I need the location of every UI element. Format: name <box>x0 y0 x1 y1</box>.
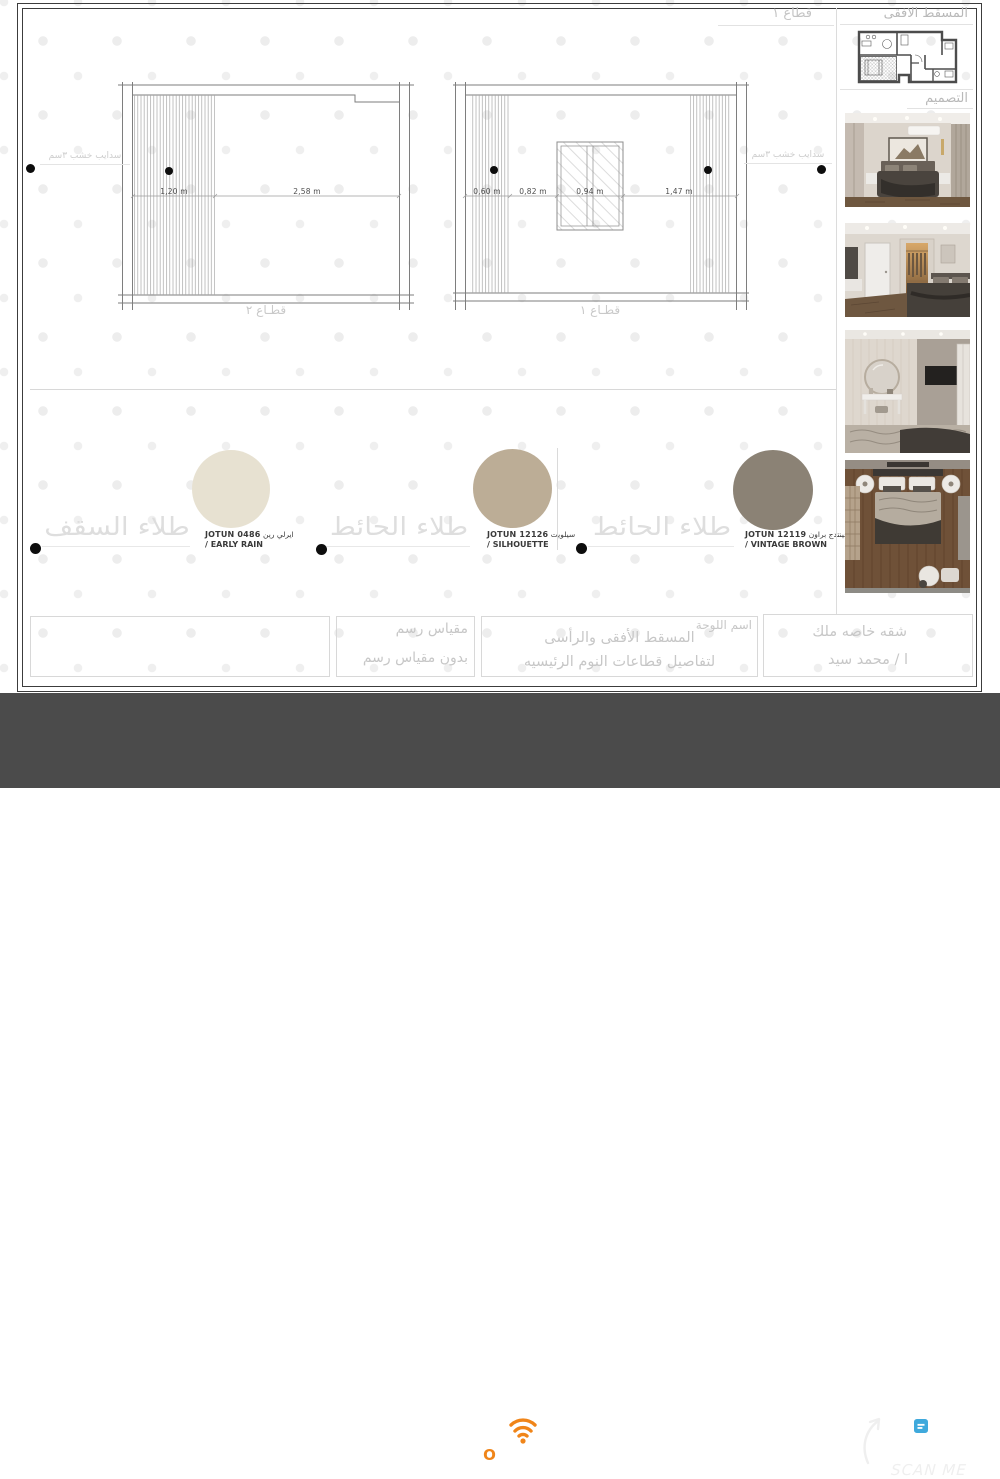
moullak-logo-graphic <box>425 1389 585 1449</box>
qr-scan-block: SCAN ME <box>858 1387 990 1479</box>
section-divider-line <box>30 389 836 390</box>
dimension-label: 0,94 m <box>568 187 612 196</box>
jotun-name-arabic: ايرلي رين <box>263 530 294 539</box>
drawing-sheet: قطاع ١ 1,20 m 2,58 m قطـاع ٢ <box>0 0 1000 788</box>
floor-plan-thumbnail <box>845 27 971 91</box>
jotun-name-english: / SILHOUETTE <box>487 540 575 550</box>
wordmark-part-accent: O <box>483 1446 497 1464</box>
elevation-2-caption: قطـاع ٢ <box>216 303 316 317</box>
scale-value: بدون مقياس رسم <box>363 650 468 666</box>
qr-code <box>886 1391 956 1461</box>
marker-dot <box>704 166 712 174</box>
design-render-bedroom-top-view <box>845 460 970 593</box>
arrow-icon <box>860 1409 886 1467</box>
titleblock-sheet-name-box: اسم اللوحة المسقط الأفقى والرأسى لتفاصيل… <box>481 616 758 677</box>
marker-dot <box>316 544 327 555</box>
paint-code-label: JOTUN 12119 فينتدج براون / VINTAGE BROWN <box>745 530 848 550</box>
design-render-bedroom-wardrobe <box>845 223 970 317</box>
footer-bar: MOULLAK SCAN ME <box>0 693 1000 788</box>
elevation-drawing-section-1: 0,60 m 0,82 m 0,94 m 1,47 m <box>453 82 749 310</box>
jotun-name-arabic: فينتدج براون <box>809 530 848 539</box>
jotun-name-arabic: سيلويت <box>551 530 575 539</box>
dimension-label: 2,58 m <box>285 187 329 196</box>
titleblock-scale-box: مقياس رسم بدون مقياس رسم <box>336 616 475 677</box>
sidebar-section-rule <box>840 89 973 90</box>
dimension-label: 0,60 m <box>465 187 509 196</box>
label-underline <box>322 546 470 547</box>
titleblock-project-box: شقه خاصه ملك ا / محمد سيد <box>763 614 973 677</box>
moullak-logo: MOULLAK <box>425 1389 585 1477</box>
label-underline <box>42 546 190 547</box>
elevation-drawing-section-2: 1,20 m 2,58 m <box>118 82 414 310</box>
elevation-1-linework <box>453 82 749 310</box>
wordmark-part: M <box>467 1446 483 1464</box>
titleblock-empty-box <box>30 616 330 677</box>
marker-dot <box>490 166 498 174</box>
wood-slats-annotation-left: سدايب خشب ٣سم <box>40 151 130 165</box>
floor-plan-heading: المسقط الافقى <box>840 6 973 25</box>
moullak-wordmark: MOULLAK <box>453 1446 573 1464</box>
scale-label: مقياس رسم <box>396 621 468 637</box>
corner-section-label: قطاع ١ <box>718 6 834 26</box>
marker-dot <box>576 543 587 554</box>
jotun-code: JOTUN 12119 <box>745 530 806 539</box>
design-heading: التصميم <box>840 91 973 109</box>
paint-code-label: JOTUN 12126 سيلويت / SILHOUETTE <box>487 530 575 550</box>
sidebar-divider-line <box>836 8 837 615</box>
ceiling-paint-label: طلاء السقف <box>37 512 196 542</box>
design-render-bedroom-vanity <box>845 330 970 453</box>
paint-swatch-early-rain <box>192 450 270 528</box>
scan-me-label: SCAN ME <box>883 1461 974 1479</box>
elevation-2-linework <box>118 82 414 310</box>
project-line2: ا / محمد سيد <box>764 652 972 668</box>
dimension-label: 1,47 m <box>657 187 701 196</box>
marker-dot <box>817 165 826 174</box>
design-heading-underline <box>907 108 973 109</box>
elevation-1-caption: قطـاع ١ <box>550 303 650 317</box>
sheet-title-line2: لتفاصيل قطاعات النوم الرئيسيه <box>482 654 757 670</box>
label-underline <box>588 546 734 547</box>
wall-paint-label: طلاء الحائط <box>582 512 741 542</box>
sheet-title-line1: المسقط الأفقى والرأسى <box>482 630 757 646</box>
wordmark-part: ULLAK <box>497 1446 559 1464</box>
dimension-label: 0,82 m <box>511 187 555 196</box>
swatch-divider-line <box>557 448 558 550</box>
project-line1: شقه خاصه ملك <box>764 624 955 640</box>
paint-swatch-vintage-brown <box>733 450 813 530</box>
jotun-name-english: / EARLY RAIN <box>205 540 294 550</box>
marker-dot <box>26 164 35 173</box>
wood-slats-annotation-right: سدايب خشب ٣سم <box>744 150 832 164</box>
wall-paint-label: طلاء الحائط <box>319 512 478 542</box>
marker-dot <box>30 543 41 554</box>
marker-dot <box>165 167 173 175</box>
dimension-label: 1,20 m <box>152 187 196 196</box>
jotun-name-english: / VINTAGE BROWN <box>745 540 848 550</box>
design-render-bedroom-front <box>845 113 970 207</box>
paint-swatch-silhouette <box>473 449 552 528</box>
jotun-code: JOTUN 12126 <box>487 530 548 539</box>
paint-code-label: JOTUN 0486 ايرلي رين / EARLY RAIN <box>205 530 294 550</box>
jotun-code: JOTUN 0486 <box>205 530 260 539</box>
